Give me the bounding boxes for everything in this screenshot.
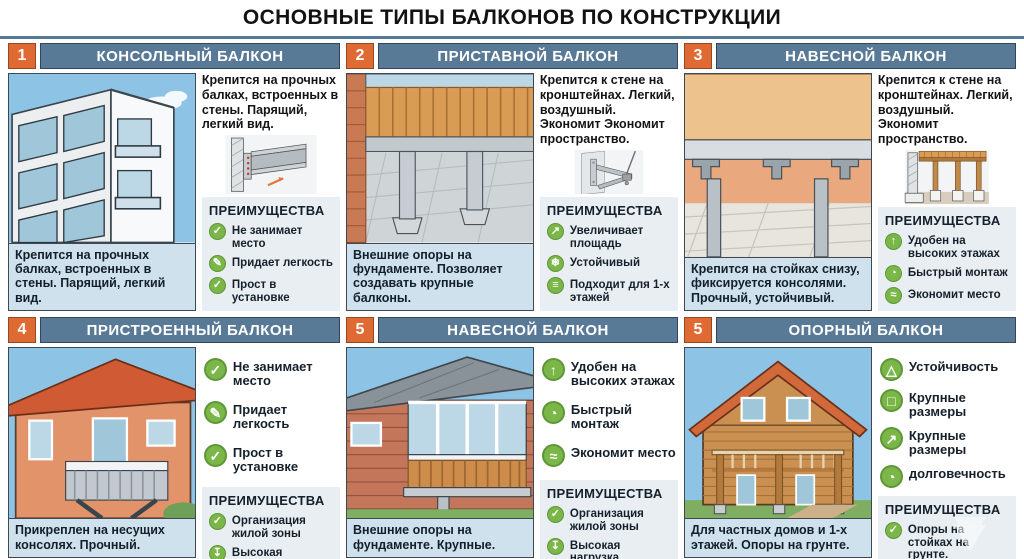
illustration-frame: Внешние опоры на фундаменте. Позволяет с… [346, 73, 534, 311]
watermark-arrow [954, 525, 986, 551]
advantage-item: ✓ Организация жилой зоны [547, 506, 671, 533]
feature-list: ↑ Удобен на высоких этажах ◔ Быстрый мон… [540, 347, 678, 480]
detail-illustration-embedded-beam [202, 132, 340, 197]
floors-icon: ≡ [547, 277, 564, 294]
waves-icon: ≈ [885, 287, 902, 304]
check-icon: ✓ [209, 223, 226, 240]
feather-icon: ✎ [209, 255, 226, 272]
load-icon: ↧ [547, 538, 564, 555]
snowflake-icon: ❄ [547, 255, 564, 272]
panel-supported-balcony: 5 ОПОРНЫЙ БАЛКОН [684, 317, 1016, 558]
advantage-label: Организация жилой зоны [570, 506, 671, 533]
panel-number-badge: 2 [346, 43, 374, 69]
panel-builtout-balcony: 4 ПРИСТРОЕННЫЙ БАЛКОН [8, 317, 340, 558]
advantage-item: ◔ Быстрый монтаж [885, 265, 1009, 282]
advantages-box: ПРЕИМУЩЕСТВА ✓ Организация жилой зоны ↧ … [202, 487, 340, 559]
advantages-box: ПРЕИМУЩЕСТВА ✓ Не занимает место ✎ Прида… [202, 197, 340, 311]
advantages-box: ПРЕИМУЩЕСТВА ↑ Удобен на высоких этажах … [878, 207, 1016, 311]
feature-item: ↗ Крупные размеры [880, 427, 1016, 457]
panel-cantilever-balcony: 1 КОНСОЛЬНЫЙ БАЛКОН [8, 43, 340, 311]
panel-number-badge: 5 [346, 317, 374, 343]
diagonal-arrow-icon: ↗ [880, 427, 903, 450]
advantage-item: ↑ Удобен на высоких этажах [885, 233, 1009, 260]
panel-description: Крепится к стене на кронштейнах. Легкий,… [540, 73, 678, 147]
arrow-up-icon: ↑ [542, 358, 565, 381]
panel-number-badge: 1 [8, 43, 36, 69]
panel-attached-balcony: 2 ПРИСТАВНОЙ БАЛКОН [346, 43, 678, 311]
feature-item: ◔ Быстрый монтаж [542, 401, 678, 431]
check-icon: ✓ [547, 506, 564, 523]
illustration-wooden-house-porch [685, 348, 871, 518]
illustration-frame: Для частных домов и 1-х этажей. Опоры на… [684, 347, 872, 558]
panel-hung-balcony-2: 5 НАВЕСНОЙ БАЛКОН [346, 317, 678, 558]
feature-label: Удобен на высоких этажах [571, 358, 678, 388]
panel-title: НАВЕСНОЙ БАЛКОН [716, 43, 1016, 69]
feature-item: ✓ Прост в установке [204, 444, 340, 474]
illustration-frame: Крепится на стойках снизу, фиксируется к… [684, 73, 872, 311]
clock-icon: ◔ [880, 465, 903, 488]
advantage-label: Устойчивый [570, 255, 640, 269]
advantage-item: ✓ Опоры на стойках на грунте. Максимальн… [885, 522, 1009, 559]
advantage-item: ✓ Организация жилой зоны [209, 513, 333, 540]
load-icon: ↧ [209, 545, 226, 559]
advantage-label: Высокая нагрузка [570, 538, 671, 559]
panel-caption: Внешние опоры на фундаменте. Позволяет с… [347, 243, 533, 311]
advantage-item: ↧ Высокая нагрузка [547, 538, 671, 559]
page-title: ОСНОВНЫЕ ТИПЫ БАЛКОНОВ ПО КОНСТРУКЦИИ [0, 0, 1024, 30]
panel-caption: Крепится на стойках снизу, фиксируется к… [685, 257, 871, 310]
feature-item: ↑ Удобен на высоких этажах [542, 358, 678, 388]
arrow-up-icon: ↑ [885, 233, 902, 250]
advantage-item: ↧ Высокая нагрузка [209, 545, 333, 559]
advantage-item: ≈ Экономит место [885, 287, 1009, 304]
advantages-box: ПРЕИМУЩЕСТВА ↗ Увеличивает площадь ❄ Уст… [540, 197, 678, 311]
expand-arrow-icon: ↗ [547, 223, 564, 240]
panel-description: Крепится к стене на кронштейнах. Легкий,… [878, 73, 1016, 147]
advantages-heading: ПРЕИМУЩЕСТВА [547, 486, 671, 501]
feature-item: ✓ Не занимает место [204, 358, 340, 388]
panel-number-badge: 4 [8, 317, 36, 343]
panel-caption: Крепится на прочных балках, встроенных в… [9, 243, 195, 311]
illustration-slab-with-brackets [685, 74, 871, 257]
advantage-label: Не занимает место [232, 223, 333, 250]
advantage-item: ❄ Устойчивый [547, 255, 671, 272]
check-icon: ✓ [209, 277, 226, 294]
feature-label: Не занимает место [233, 358, 340, 388]
advantages-heading: ПРЕИМУЩЕСТВА [209, 493, 333, 508]
panel-header: 5 НАВЕСНОЙ БАЛКОН [346, 317, 678, 343]
feature-item: ✎ Придает легкость [204, 401, 340, 431]
detail-illustration-posts-on-footings [878, 147, 1016, 207]
detail-illustration-wall-bracket [540, 147, 678, 198]
panel-hung-balcony: 3 НАВЕСНОЙ БАЛКОН [684, 43, 1016, 311]
feature-label: долговечность [909, 465, 1006, 481]
advantages-heading: ПРЕИМУЩЕСТВА [885, 213, 1009, 228]
advantage-label: Увеличивает площадь [570, 223, 671, 250]
feature-label: Быстрый монтаж [571, 401, 678, 431]
illustration-brick-house-glazed-balcony [347, 348, 533, 518]
feature-label: Придает легкость [233, 401, 340, 431]
advantage-label: Прост в установке [232, 277, 333, 304]
check-icon: ✓ [885, 522, 902, 539]
feature-item: △ Устойчивость [880, 358, 1016, 381]
panel-header: 2 ПРИСТАВНОЙ БАЛКОН [346, 43, 678, 69]
advantage-item: ✎ Придает легкость [209, 255, 333, 272]
advantage-item: ↗ Увеличивает площадь [547, 223, 671, 250]
feather-icon: ✎ [204, 401, 227, 424]
panel-caption: Внешние опоры на фундаменте. Крупные. [347, 518, 533, 557]
panel-caption: Прикреплен на несущих консолях. Прочный. [9, 518, 195, 557]
advantage-label: Быстрый монтаж [908, 265, 1008, 279]
advantages-heading: ПРЕИМУЩЕСТВА [885, 502, 1009, 517]
advantage-label: Высокая нагрузка [232, 545, 333, 559]
advantage-item: ✓ Не занимает место [209, 223, 333, 250]
advantages-heading: ПРЕИМУЩЕСТВА [547, 203, 671, 218]
feature-label: Прост в установке [233, 444, 340, 474]
feature-label: Крупные размеры [909, 427, 1016, 457]
illustration-balcony-on-posts [347, 74, 533, 243]
triangle-icon: △ [880, 358, 903, 381]
feature-item: ◔ долговечность [880, 465, 1016, 488]
illustration-frame: Крепится на прочных балках, встроенных в… [8, 73, 196, 311]
advantage-label: Подходит для 1-х этажей [570, 277, 671, 304]
feature-list: ✓ Не занимает место ✎ Придает легкость ✓… [202, 347, 340, 487]
advantage-item: ✓ Прост в установке [209, 277, 333, 304]
illustration-frame: Прикреплен на несущих консолях. Прочный. [8, 347, 196, 558]
advantages-box: ПРЕИМУЩЕСТВА ✓ Организация жилой зоны ↧ … [540, 480, 678, 559]
advantages-box: ПРЕИМУЩЕСТВА ✓ Опоры на стойках на грунт… [878, 496, 1016, 559]
panel-title: ОПОРНЫЙ БАЛКОН [716, 317, 1016, 343]
infographic-page: ОСНОВНЫЕ ТИПЫ БАЛКОНОВ ПО КОНСТРУКЦИИ 1 … [0, 0, 1024, 559]
panel-number-badge: 3 [684, 43, 712, 69]
clock-icon: ◔ [542, 401, 565, 424]
advantage-label: Придает легкость [232, 255, 333, 269]
feature-item: ≈ Экономит место [542, 444, 678, 467]
panel-title: КОНСОЛЬНЫЙ БАЛКОН [40, 43, 340, 69]
panels-grid: 1 КОНСОЛЬНЫЙ БАЛКОН [0, 39, 1024, 558]
panel-title: ПРИСТРОЕННЫЙ БАЛКОН [40, 317, 340, 343]
square-icon: □ [880, 389, 903, 412]
advantage-label: Удобен на высоких этажах [908, 233, 1009, 260]
feature-label: Устойчивость [909, 358, 998, 374]
panel-number-badge: 5 [684, 317, 712, 343]
panel-header: 3 НАВЕСНОЙ БАЛКОН [684, 43, 1016, 69]
panel-header: 5 ОПОРНЫЙ БАЛКОН [684, 317, 1016, 343]
feature-item: □ Крупные размеры [880, 389, 1016, 419]
advantage-label: Организация жилой зоны [232, 513, 333, 540]
check-icon: ✓ [204, 444, 227, 467]
feature-label: Крупные размеры [909, 389, 1016, 419]
advantage-label: Экономит место [908, 287, 1001, 301]
check-icon: ✓ [204, 358, 227, 381]
panel-header: 1 КОНСОЛЬНЫЙ БАЛКОН [8, 43, 340, 69]
panel-header: 4 ПРИСТРОЕННЫЙ БАЛКОН [8, 317, 340, 343]
feature-label: Экономит место [571, 444, 676, 460]
illustration-frame: Внешние опоры на фундаменте. Крупные. [346, 347, 534, 558]
advantages-heading: ПРЕИМУЩЕСТВА [209, 203, 333, 218]
advantage-item: ≡ Подходит для 1-х этажей [547, 277, 671, 304]
check-icon: ✓ [209, 513, 226, 530]
panel-title: ПРИСТАВНОЙ БАЛКОН [378, 43, 678, 69]
illustration-house-console-balcony [9, 348, 195, 518]
clock-icon: ◔ [885, 265, 902, 282]
feature-list: △ Устойчивость □ Крупные размеры ↗ Крупн… [878, 347, 1016, 496]
panel-title: НАВЕСНОЙ БАЛКОН [378, 317, 678, 343]
illustration-cantilever-building [9, 74, 195, 243]
panel-description: Крепится на прочных балках, встроенных в… [202, 73, 340, 132]
panel-caption: Для частных домов и 1-х этажей. Опоры на… [685, 518, 871, 557]
waves-icon: ≈ [542, 444, 565, 467]
